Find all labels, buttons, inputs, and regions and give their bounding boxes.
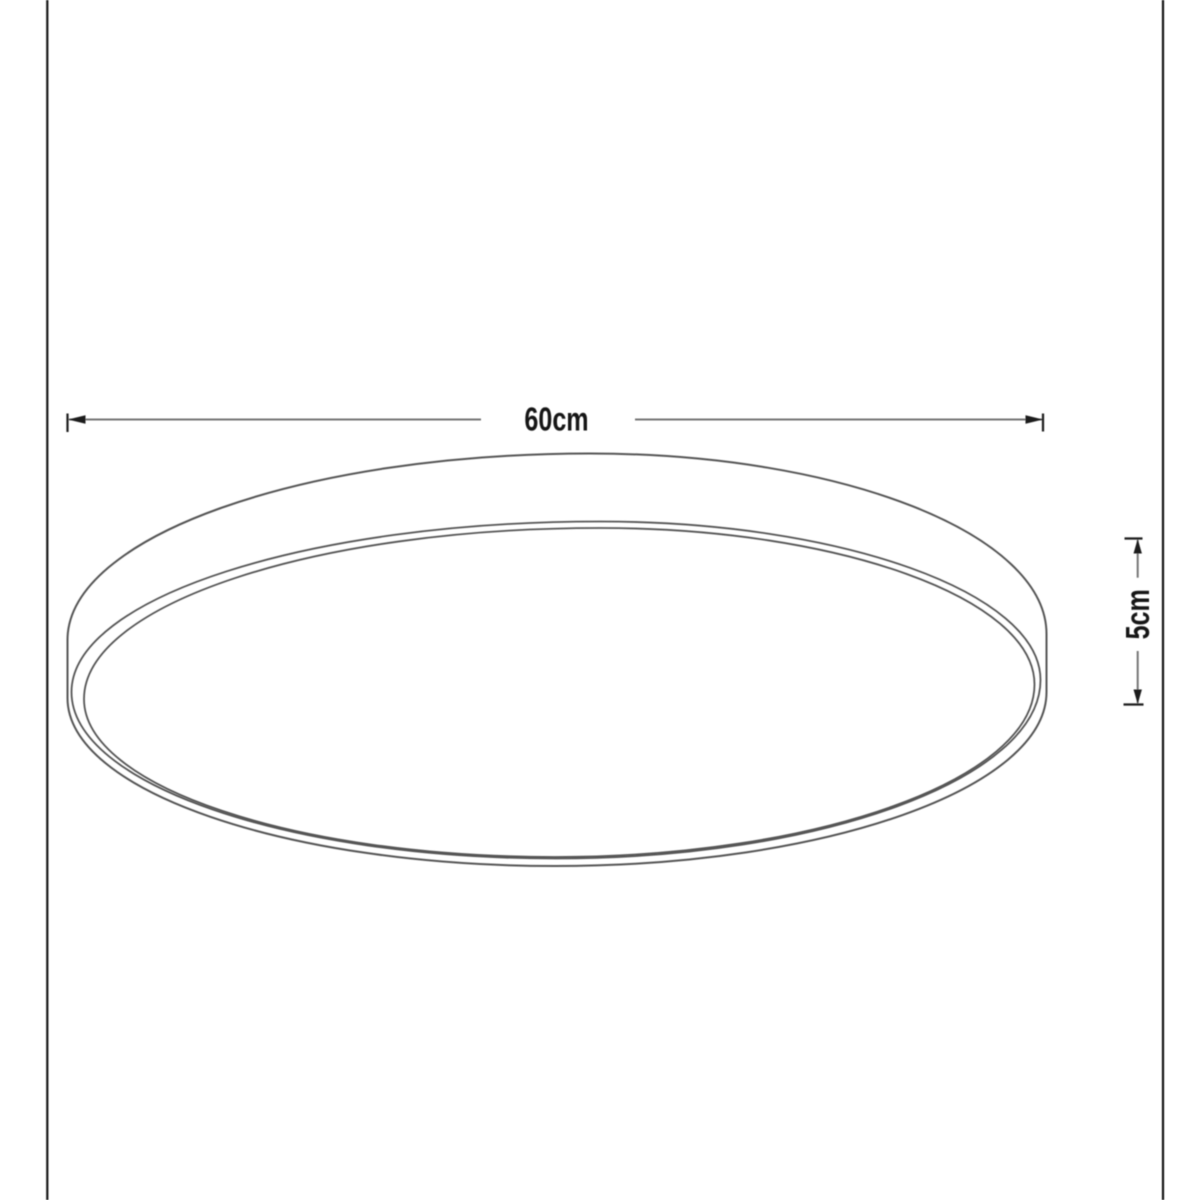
svg-text:60cm: 60cm	[524, 401, 588, 438]
svg-text:5cm: 5cm	[1120, 589, 1157, 639]
